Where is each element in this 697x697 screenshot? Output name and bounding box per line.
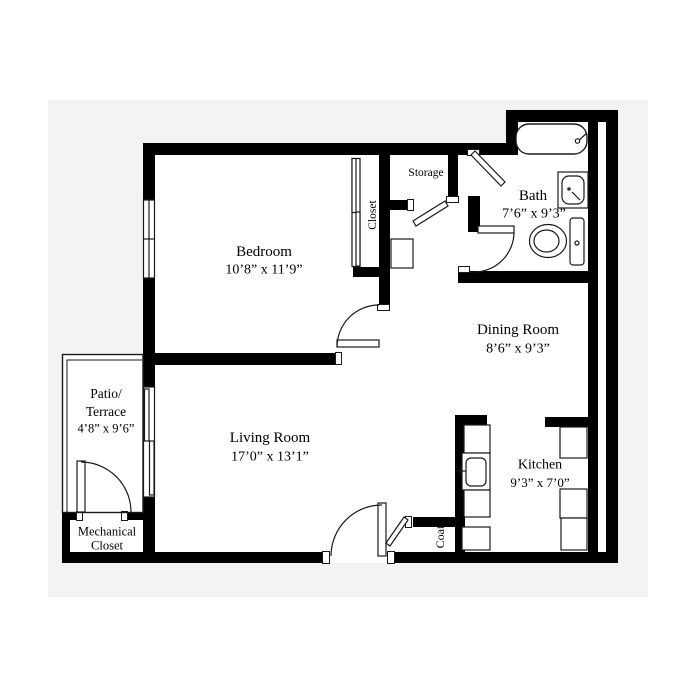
floor-plan: Bedroom 10’8” x 11’9” Bath 7’6” x 9’3” D… [0, 0, 697, 697]
bath-label: Bath [519, 187, 547, 205]
kitchen-counters-left-icon [456, 425, 490, 550]
mech-door-arc [81, 462, 131, 512]
bath-door-leaf [478, 226, 514, 233]
bedroom-door-leaf [337, 340, 379, 347]
entry-door-leaf [378, 503, 386, 556]
living-room-slider-window [144, 387, 155, 497]
kitchen-label: Kitchen [518, 458, 562, 475]
toilet-icon [530, 218, 585, 265]
closet-shelf-icon [391, 239, 413, 268]
bedroom-closet-label: Closet [367, 200, 381, 229]
bedroom-label: Bedroom [236, 243, 292, 261]
bath-dims: 7’6” x 9’3” [502, 207, 566, 224]
coat-closet-label: Coat [433, 526, 447, 549]
patio-label-line1: Patio/ [90, 386, 122, 402]
bedroom-dims: 10’8” x 11’9” [225, 263, 302, 280]
entry-door-arc [331, 505, 382, 556]
dining-room-label: Dining Room [477, 321, 559, 339]
mech-door-leaf [77, 461, 85, 512]
bathroom-sink-icon [558, 172, 588, 208]
bedroom-window [143, 200, 155, 278]
storage-door-leaf [413, 201, 448, 226]
storage-label: Storage [408, 167, 443, 181]
plan-linework [0, 0, 697, 697]
living-room-dims: 17’0” x 13’1” [231, 450, 309, 467]
bedroom-closet-sliding-doors [352, 159, 360, 267]
coat-door-leaf [386, 517, 408, 546]
patio-dims: 4’8” x 9’6” [78, 422, 135, 437]
living-room-label: Living Room [230, 429, 310, 447]
kitchen-dims: 9’3” x 7’0” [510, 475, 569, 491]
mechanical-closet-label-line1: Mechanical [78, 525, 136, 540]
bath-upper-door-leaf [471, 151, 505, 186]
bath-door-arc [474, 232, 514, 272]
patio-label-line2: Terrace [86, 404, 126, 420]
bathtub-icon [516, 124, 587, 154]
mechanical-closet-label-line2: Closet [91, 539, 123, 554]
dining-room-dims: 8’6” x 9’3” [486, 342, 550, 359]
